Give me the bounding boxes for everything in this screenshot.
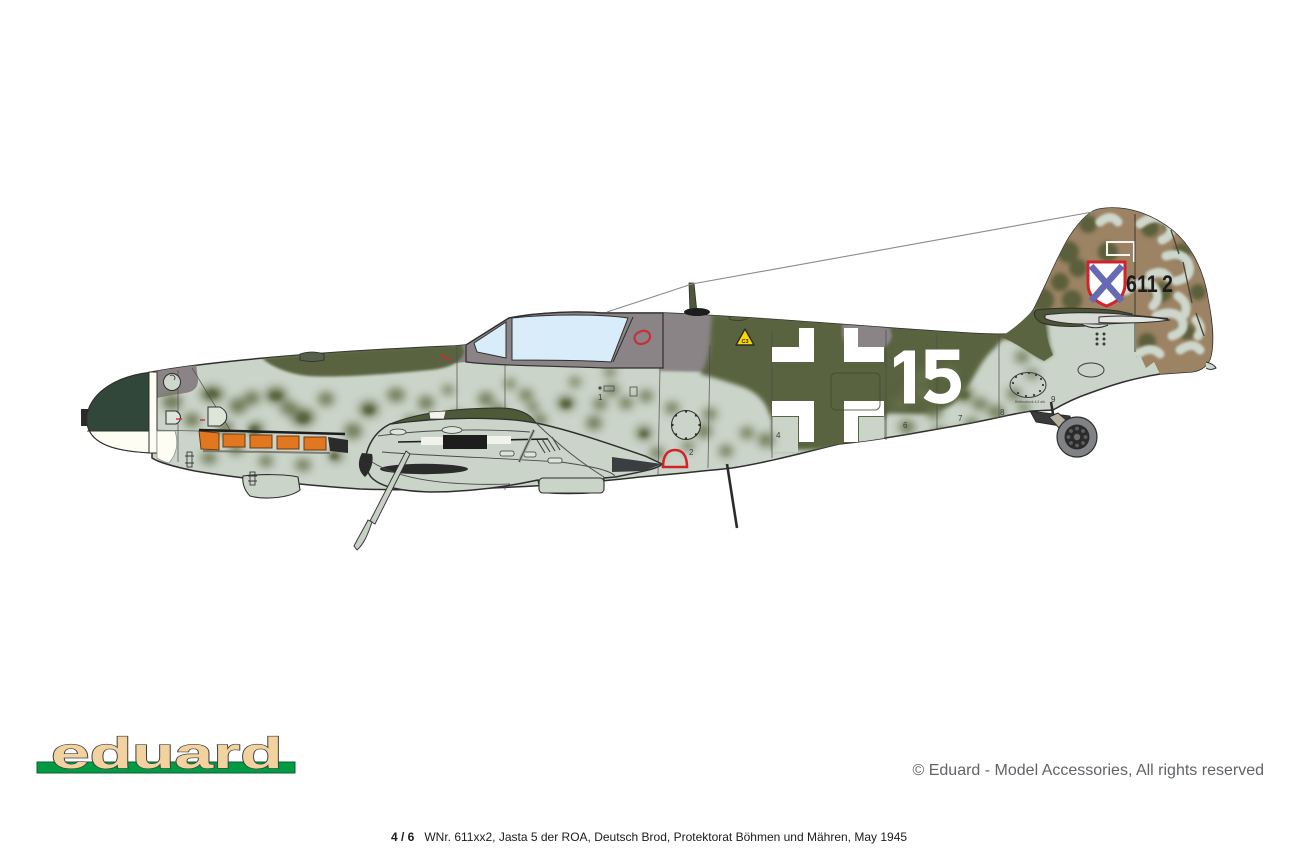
svg-text:© Eduard - Model Accessories,: © Eduard - Model Accessories, All rights… [913,762,1265,779]
svg-text:4 / 6WNr. 611xx2, Jasta 5 der: 4 / 6WNr. 611xx2, Jasta 5 der ROA, Deuts… [391,830,907,844]
svg-text:8: 8 [1000,408,1005,417]
svg-text:Reifendruck 4,5 atü: Reifendruck 4,5 atü [1015,400,1045,404]
svg-text:611: 611 [1126,270,1158,297]
svg-text:eduard: eduard [51,729,283,778]
svg-text:4: 4 [776,431,781,440]
svg-text:2: 2 [1162,270,1173,297]
svg-text:C3: C3 [741,339,748,345]
svg-text:2: 2 [689,448,694,457]
svg-text:7: 7 [958,414,963,423]
svg-text:1: 1 [598,393,603,402]
svg-text:6: 6 [903,421,908,430]
